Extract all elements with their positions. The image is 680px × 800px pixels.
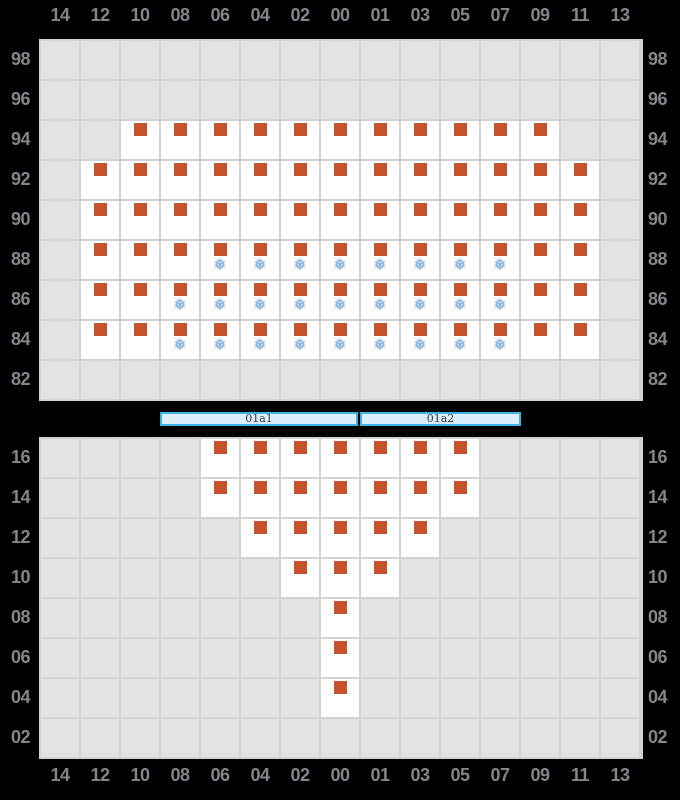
data-cell: ❅ [241,241,279,279]
empty-cell [521,41,559,79]
data-cell [321,201,359,239]
empty-cell [81,439,119,477]
data-cell [161,201,199,239]
y-axis-label-left: 84 [0,320,30,360]
snowflake-icon: ❅ [373,297,386,313]
y-axis-label-right: 94 [648,120,680,160]
square-marker [174,243,187,256]
empty-cell [521,679,559,717]
empty-cell [201,679,239,717]
square-marker [454,481,467,494]
square-marker [134,323,147,336]
empty-cell [481,81,519,119]
snowflake-icon: ❅ [173,337,186,353]
empty-cell [361,679,399,717]
square-marker [494,203,507,216]
square-marker [374,203,387,216]
empty-cell [201,81,239,119]
data-cell [81,241,119,279]
x-axis-label: 01 [360,4,400,26]
snowflake-icon: ❅ [213,257,226,273]
square-marker [574,203,587,216]
empty-cell [121,479,159,517]
empty-cell [281,599,319,637]
y-axis-label-right: 04 [648,678,680,718]
empty-cell [41,281,79,319]
data-cell [121,161,159,199]
square-marker [254,521,267,534]
data-cell [201,161,239,199]
empty-cell [161,41,199,79]
data-cell [281,519,319,557]
square-marker [294,203,307,216]
empty-cell [601,559,639,597]
snowflake-icon: ❅ [493,257,506,273]
square-marker [454,441,467,454]
snowflake-icon: ❅ [293,257,306,273]
square-marker [334,681,347,694]
x-axis-label: 03 [400,764,440,786]
snowflake-icon: ❅ [213,297,226,313]
empty-cell [81,81,119,119]
empty-cell [241,81,279,119]
empty-cell [481,719,519,757]
data-cell [561,201,599,239]
data-cell [441,121,479,159]
data-cell: ❅ [281,281,319,319]
y-axis-label-left: 96 [0,80,30,120]
square-marker [334,123,347,136]
empty-cell [321,719,359,757]
square-marker [214,203,227,216]
empty-cell [601,719,639,757]
empty-cell [41,559,79,597]
data-cell [401,121,439,159]
empty-cell [121,679,159,717]
empty-cell [601,201,639,239]
y-axis-label-left: 94 [0,120,30,160]
empty-cell [561,361,599,399]
data-cell [361,121,399,159]
square-marker [214,123,227,136]
data-cell [521,321,559,359]
x-axis-label: 00 [320,764,360,786]
y-axis-label-right: 90 [648,200,680,240]
empty-cell [161,599,199,637]
snowflake-icon: ❅ [333,337,346,353]
data-cell [361,519,399,557]
y-axis-label-left: 14 [0,478,30,518]
empty-cell [601,639,639,677]
empty-cell [321,81,359,119]
x-axis-label: 12 [80,4,120,26]
empty-cell [41,719,79,757]
empty-cell [401,599,439,637]
empty-cell [41,479,79,517]
data-cell [521,241,559,279]
range-segment-01a1[interactable]: 01a1 [160,412,358,426]
data-cell [561,281,599,319]
square-marker [254,481,267,494]
empty-cell [41,121,79,159]
empty-cell [281,361,319,399]
data-cell: ❅ [281,241,319,279]
empty-cell [161,479,199,517]
empty-cell [81,719,119,757]
empty-cell [121,519,159,557]
y-axis-label-right: 84 [648,320,680,360]
empty-cell [161,639,199,677]
range-segment-01a2[interactable]: 01a2 [360,412,521,426]
square-marker [174,163,187,176]
y-axis-label-left: 90 [0,200,30,240]
square-marker [454,123,467,136]
data-cell [241,439,279,477]
y-axis-label-left: 88 [0,240,30,280]
x-axis-label: 07 [480,4,520,26]
data-cell: ❅ [321,241,359,279]
y-axis-label-right: 96 [648,80,680,120]
x-axis-label: 11 [560,764,600,786]
x-axis-label: 02 [280,4,320,26]
empty-cell [481,599,519,637]
data-cell [401,439,439,477]
square-marker [334,441,347,454]
empty-cell [521,559,559,597]
square-marker [334,203,347,216]
data-cell [161,121,199,159]
snowflake-icon: ❅ [333,257,346,273]
data-cell [241,121,279,159]
data-cell: ❅ [201,241,239,279]
data-cell: ❅ [481,241,519,279]
data-cell [201,201,239,239]
y-axis-label-right: 16 [648,438,680,478]
square-marker [294,561,307,574]
empty-cell [321,41,359,79]
square-marker [454,163,467,176]
snowflake-icon: ❅ [453,337,466,353]
x-axis-label: 08 [160,764,200,786]
data-cell [121,281,159,319]
snowflake-icon: ❅ [453,257,466,273]
square-marker [374,441,387,454]
y-axis-label-right: 10 [648,558,680,598]
y-axis-label-left: 12 [0,518,30,558]
empty-cell [441,679,479,717]
empty-cell [81,639,119,677]
square-marker [94,163,107,176]
empty-cell [441,41,479,79]
empty-cell [81,479,119,517]
empty-cell [361,41,399,79]
data-cell [281,121,319,159]
empty-cell [401,81,439,119]
empty-cell [81,41,119,79]
empty-cell [41,439,79,477]
square-marker [334,601,347,614]
square-marker [134,283,147,296]
y-axis-label-left: 98 [0,40,30,80]
empty-cell [281,81,319,119]
x-axis-label: 05 [440,764,480,786]
snowflake-icon: ❅ [413,337,426,353]
empty-cell [481,479,519,517]
x-axis-label: 04 [240,4,280,26]
empty-cell [121,599,159,637]
square-marker [294,441,307,454]
x-axis-label: 05 [440,4,480,26]
y-axis-label-left: 04 [0,678,30,718]
data-cell: ❅ [321,321,359,359]
square-marker [534,123,547,136]
square-marker [294,163,307,176]
x-axis-label: 07 [480,764,520,786]
square-marker [214,441,227,454]
x-axis-label: 11 [560,4,600,26]
empty-cell [561,559,599,597]
data-cell [281,201,319,239]
square-marker [534,283,547,296]
x-axis-top: 141210080604020001030507091113 [40,4,640,26]
snowflake-icon: ❅ [333,297,346,313]
data-cell [281,161,319,199]
data-cell [321,559,359,597]
data-cell [321,519,359,557]
empty-cell [161,439,199,477]
square-marker [414,481,427,494]
empty-cell [561,519,599,557]
empty-cell [161,679,199,717]
empty-cell [161,81,199,119]
data-cell: ❅ [441,241,479,279]
data-cell [361,559,399,597]
snowflake-icon: ❅ [213,337,226,353]
data-cell [121,241,159,279]
empty-cell [41,81,79,119]
empty-cell [481,439,519,477]
empty-cell [481,639,519,677]
top-grid-panel: ❅❅❅❅❅❅❅❅❅❅❅❅❅❅❅❅❅❅❅❅❅❅❅❅❅❅ [39,39,643,401]
empty-cell [41,361,79,399]
empty-cell [121,719,159,757]
square-marker [254,123,267,136]
x-axis-label: 12 [80,764,120,786]
empty-cell [401,719,439,757]
empty-cell [241,599,279,637]
square-marker [574,243,587,256]
x-axis-label: 06 [200,764,240,786]
snowflake-icon: ❅ [413,297,426,313]
empty-cell [601,281,639,319]
x-axis-label: 10 [120,4,160,26]
data-cell [521,281,559,319]
square-marker [334,641,347,654]
square-marker [374,123,387,136]
square-marker [94,203,107,216]
empty-cell [41,241,79,279]
empty-cell [241,719,279,757]
data-cell: ❅ [401,321,439,359]
data-cell: ❅ [361,241,399,279]
empty-cell [81,599,119,637]
square-marker [94,323,107,336]
square-marker [534,163,547,176]
empty-cell [241,639,279,677]
square-marker [574,323,587,336]
y-axis-label-left: 10 [0,558,30,598]
empty-cell [161,559,199,597]
square-marker [174,203,187,216]
empty-cell [601,321,639,359]
empty-cell [561,599,599,637]
data-cell: ❅ [401,241,439,279]
y-axis-label-left: 82 [0,360,30,400]
empty-cell [201,599,239,637]
x-axis-label: 09 [520,764,560,786]
data-cell [441,479,479,517]
data-cell [241,161,279,199]
x-axis-label: 13 [600,764,640,786]
snowflake-icon: ❅ [453,297,466,313]
empty-cell [121,639,159,677]
empty-cell [121,439,159,477]
square-marker [414,521,427,534]
snowflake-icon: ❅ [373,337,386,353]
data-cell: ❅ [241,281,279,319]
bottom-grid-panel [39,437,643,759]
y-axis-label-right: 86 [648,280,680,320]
data-cell [81,281,119,319]
empty-cell [481,361,519,399]
data-cell [561,321,599,359]
data-cell [441,439,479,477]
x-axis-label: 10 [120,764,160,786]
empty-cell [121,81,159,119]
data-cell [161,161,199,199]
snowflake-icon: ❅ [493,297,506,313]
empty-cell [281,639,319,677]
data-cell [241,201,279,239]
data-cell [561,241,599,279]
square-marker [534,243,547,256]
square-marker [334,561,347,574]
data-cell [561,161,599,199]
empty-cell [601,439,639,477]
y-axis-label-right: 98 [648,40,680,80]
data-cell [281,559,319,597]
square-marker [254,441,267,454]
empty-cell [481,679,519,717]
empty-cell [361,361,399,399]
square-marker [134,243,147,256]
data-cell [321,639,359,677]
data-cell [481,201,519,239]
empty-cell [201,719,239,757]
empty-cell [41,201,79,239]
data-cell: ❅ [281,321,319,359]
x-axis-label: 03 [400,4,440,26]
x-axis-label: 14 [40,4,80,26]
data-cell [441,161,479,199]
empty-cell [601,121,639,159]
square-marker [534,323,547,336]
empty-cell [401,639,439,677]
empty-cell [441,519,479,557]
data-cell [201,479,239,517]
empty-cell [361,81,399,119]
empty-cell [441,719,479,757]
empty-cell [521,479,559,517]
empty-cell [441,559,479,597]
data-cell: ❅ [201,321,239,359]
empty-cell [601,599,639,637]
data-cell [281,439,319,477]
square-marker [334,521,347,534]
empty-cell [441,599,479,637]
empty-cell [601,361,639,399]
square-marker [574,283,587,296]
data-cell: ❅ [241,321,279,359]
data-cell: ❅ [161,321,199,359]
data-cell [361,201,399,239]
empty-cell [201,519,239,557]
empty-cell [401,41,439,79]
empty-cell [521,81,559,119]
data-cell [201,121,239,159]
square-marker [254,203,267,216]
empty-cell [561,719,599,757]
data-cell [521,121,559,159]
snowflake-icon: ❅ [413,257,426,273]
x-axis-label: 08 [160,4,200,26]
square-marker [334,163,347,176]
snowflake-icon: ❅ [253,297,266,313]
empty-cell [401,361,439,399]
snowflake-icon: ❅ [293,337,306,353]
data-cell [321,121,359,159]
data-cell [81,161,119,199]
square-marker [294,123,307,136]
empty-cell [601,479,639,517]
square-marker [414,163,427,176]
empty-cell [201,361,239,399]
y-axis-label-left: 08 [0,598,30,638]
snowflake-icon: ❅ [293,297,306,313]
empty-cell [241,41,279,79]
square-marker [214,481,227,494]
data-cell: ❅ [441,281,479,319]
square-marker [254,163,267,176]
data-cell [321,599,359,637]
square-marker [494,123,507,136]
y-axis-label-left: 92 [0,160,30,200]
square-marker [134,163,147,176]
data-cell: ❅ [361,281,399,319]
empty-cell [241,361,279,399]
x-axis-label: 04 [240,764,280,786]
square-marker [494,163,507,176]
empty-cell [321,361,359,399]
empty-cell [201,639,239,677]
empty-cell [521,519,559,557]
data-cell [521,161,559,199]
empty-cell [41,679,79,717]
y-axis-label-right: 82 [648,360,680,400]
empty-cell [281,719,319,757]
snowflake-icon: ❅ [253,337,266,353]
empty-cell [561,121,599,159]
